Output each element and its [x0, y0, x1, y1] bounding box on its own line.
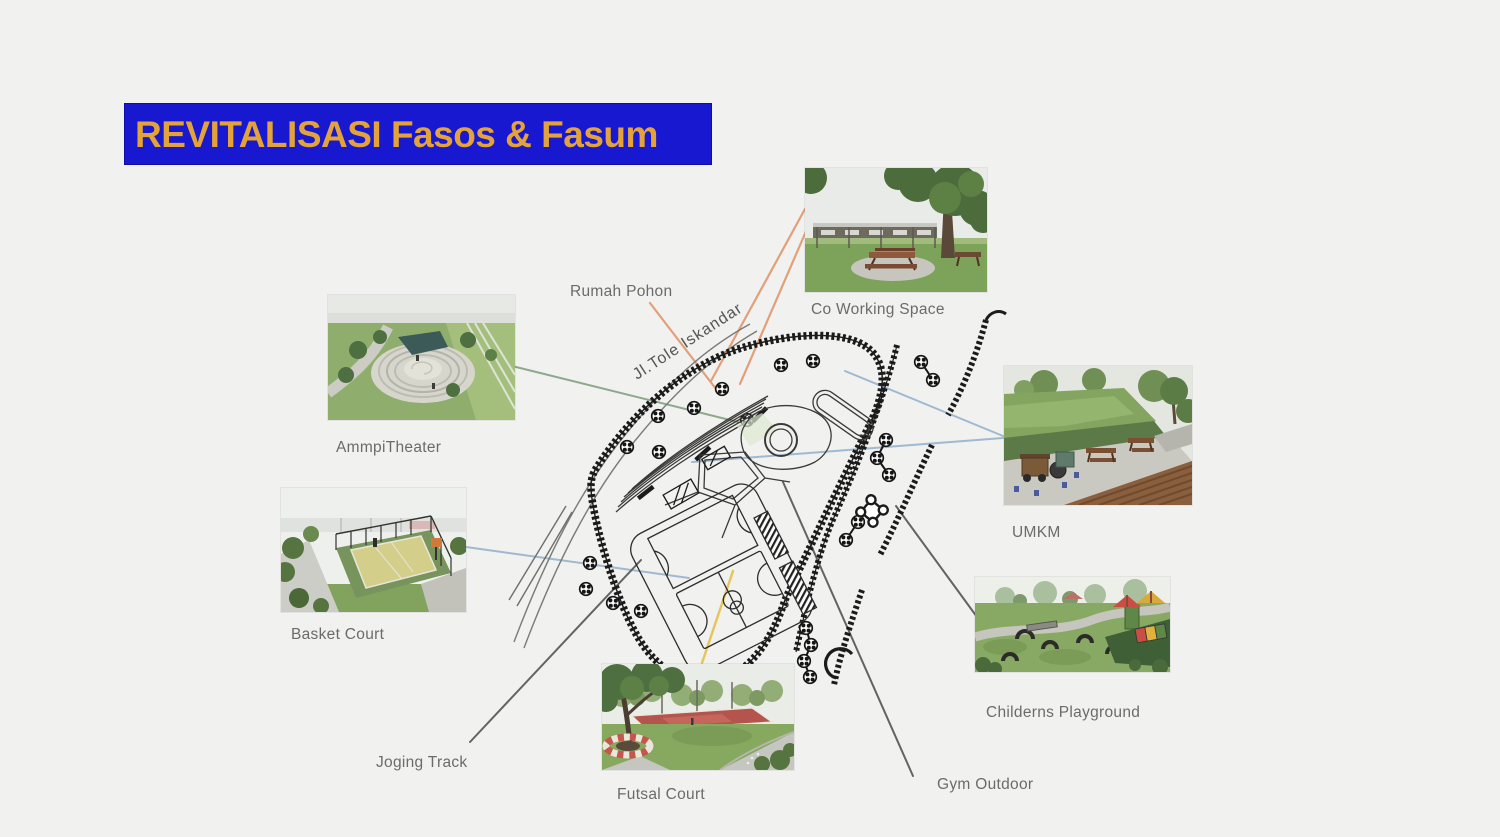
connector-ammpi-theater: [512, 366, 738, 422]
label-basket-court: Basket Court: [291, 626, 384, 644]
connector-co-working-1: [711, 209, 805, 381]
label-futsal-court: Futsal Court: [617, 786, 705, 804]
label-ammpi-theater: AmmpiTheater: [336, 439, 441, 457]
label-co-working-space: Co Working Space: [811, 301, 945, 319]
umkm-photo: [1004, 366, 1192, 505]
label-joging-track: Joging Track: [376, 754, 467, 772]
connector-futsal-court: [702, 571, 733, 663]
futsal-court-photo: [602, 664, 794, 770]
connector-basket-court: [466, 547, 689, 578]
tree-chains: [804, 362, 933, 677]
connector-umkm-1: [845, 371, 1003, 436]
connector-umkm-2: [692, 438, 1003, 462]
park-trees: [580, 355, 820, 618]
ammpi-theater-photo: [328, 295, 515, 420]
road-trees: [798, 356, 940, 684]
co-working-space-photo: [805, 168, 987, 292]
label-gym-outdoor: Gym Outdoor: [937, 776, 1033, 794]
slide-title: REVITALISASI Fasos & Fasum: [124, 103, 712, 165]
childerns-playground-photo: [975, 577, 1170, 672]
slide: Jl.Tole Iskandar REVITALISASI Fasos & Fa…: [0, 0, 1500, 837]
connector-gym-outdoor: [783, 482, 913, 776]
street-label: Jl.Tole Iskandar: [630, 300, 746, 384]
connector-playground: [896, 506, 977, 617]
label-umkm: UMKM: [1012, 524, 1061, 542]
connector-rumah-pohon: [650, 303, 716, 389]
basket-court-photo: [281, 488, 466, 612]
outer-road-lines: [509, 324, 757, 648]
label-rumah-pohon: Rumah Pohon: [570, 283, 672, 301]
interior-paths: [616, 386, 890, 677]
connector-co-working-2: [740, 229, 807, 384]
park-boundary: [591, 335, 882, 682]
label-childerns-playground: Childerns Playground: [986, 704, 1140, 722]
